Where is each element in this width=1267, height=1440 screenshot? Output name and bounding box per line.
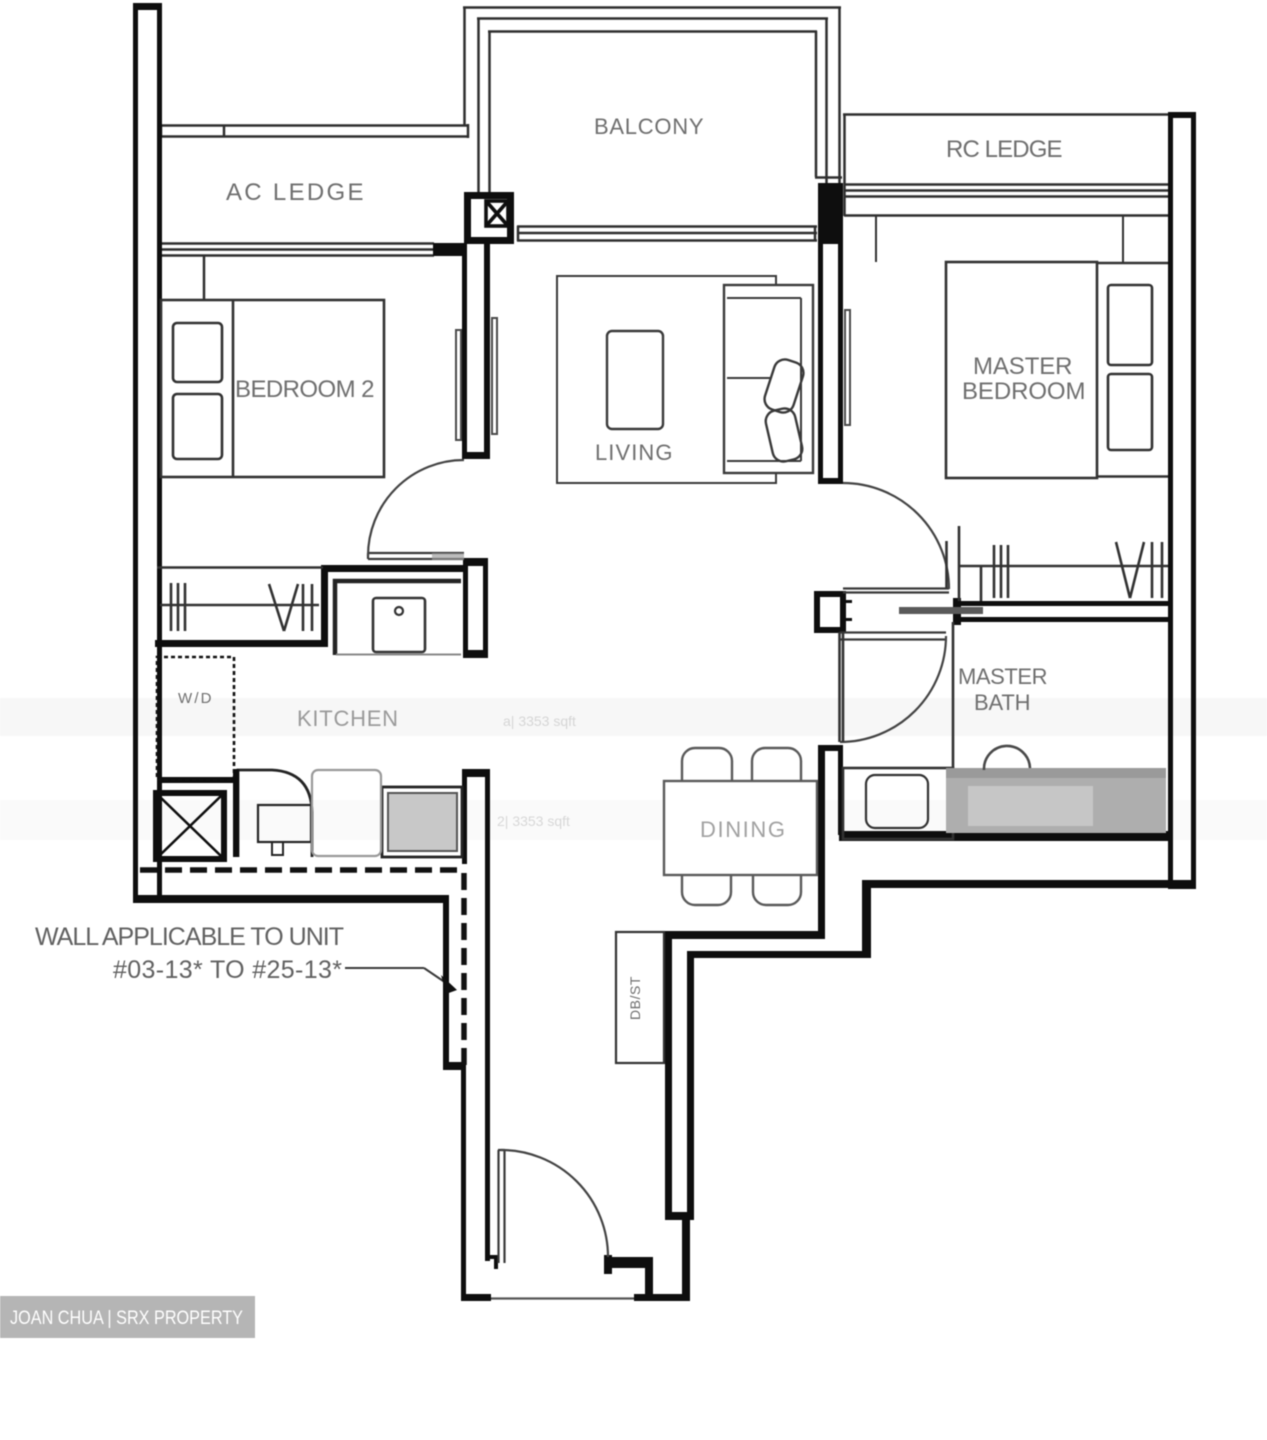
- svg-text:LIVING: LIVING: [595, 440, 675, 465]
- svg-text:AC LEDGE: AC LEDGE: [226, 179, 366, 206]
- svg-text:JOAN CHUA | SRX PROPERTY: JOAN CHUA | SRX PROPERTY: [10, 1308, 243, 1329]
- svg-text:WALL APPLICABLE TO UNIT: WALL APPLICABLE TO UNIT: [35, 923, 344, 951]
- svg-text:#03-13* TO #25-13*: #03-13* TO #25-13*: [113, 956, 342, 984]
- svg-text:a| 3353 sqft: a| 3353 sqft: [503, 713, 576, 729]
- svg-text:KITCHEN: KITCHEN: [297, 706, 398, 731]
- svg-text:MASTER: MASTER: [958, 664, 1050, 689]
- svg-text:BEDROOM 2: BEDROOM 2: [235, 376, 377, 403]
- svg-text:W/D: W/D: [178, 690, 214, 707]
- svg-text:BALCONY: BALCONY: [594, 114, 706, 139]
- svg-text:BATH: BATH: [974, 690, 1033, 715]
- svg-text:RC LEDGE: RC LEDGE: [946, 136, 1065, 163]
- svg-text:DB/ST: DB/ST: [627, 974, 643, 1020]
- svg-text:2| 3353 sqft: 2| 3353 sqft: [497, 813, 570, 829]
- svg-text:DINING: DINING: [700, 817, 785, 842]
- svg-text:MASTER: MASTER: [973, 353, 1075, 380]
- svg-text:BEDROOM: BEDROOM: [962, 378, 1088, 405]
